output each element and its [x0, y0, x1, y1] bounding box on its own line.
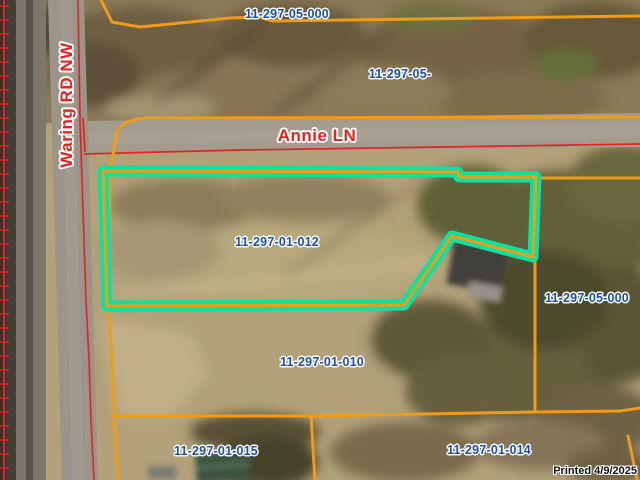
parcel-label-05-000-right: 11-297-05-000 [545, 291, 629, 305]
parcel-label-01-010: 11-297-01-010 [280, 355, 364, 369]
parcel-label-01-015: 11-297-01-015 [174, 444, 258, 458]
parcel-label-01-012: 11-297-01-012 [235, 235, 319, 249]
aerial-imagery [0, 0, 640, 480]
map-canvas[interactable] [0, 0, 640, 480]
street-label-waring-rd-nw: Waring RD NW [57, 42, 77, 167]
parcel-label-05-000-top: 11-297-05-000 [245, 7, 329, 21]
printed-date-label: Printed 4/9/2025 [553, 465, 637, 477]
railroad-corridor [0, 0, 46, 480]
parcel-map-view[interactable]: 11-297-05-000 11-297-05- 11-297-01-012 1… [0, 0, 640, 480]
street-label-annie-ln: Annie LN [278, 126, 357, 146]
parcel-label-05-truncated: 11-297-05- [369, 67, 431, 81]
parcel-label-01-014: 11-297-01-014 [447, 443, 531, 457]
